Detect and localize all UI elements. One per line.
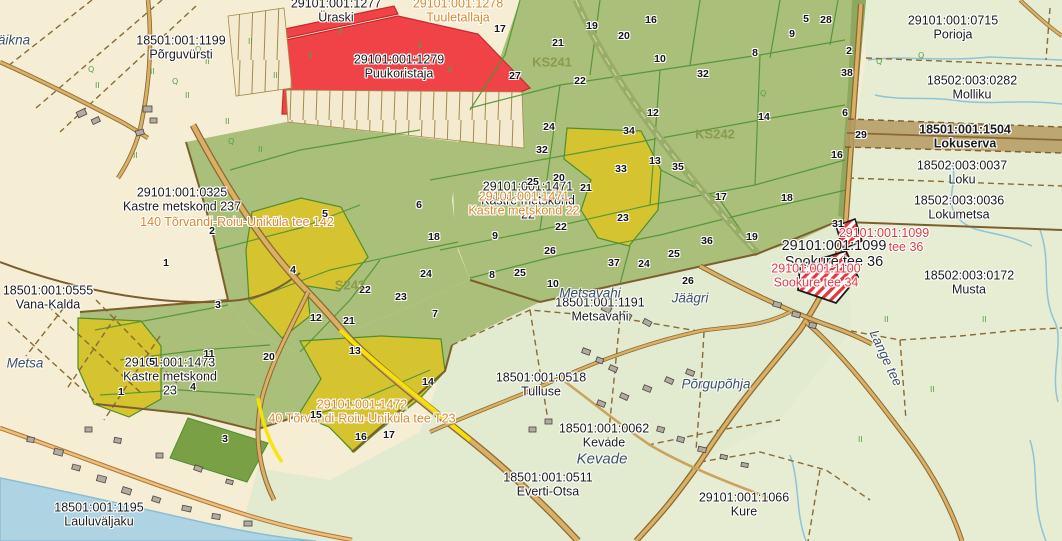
svg-text:II: II bbox=[248, 37, 253, 46]
cadastral-map[interactable]: IIIIII IIIIII IIIIII IIIIII IIIIII IIIIQ… bbox=[0, 0, 1062, 541]
svg-text:Q: Q bbox=[88, 65, 94, 74]
svg-text:II: II bbox=[418, 41, 423, 50]
svg-text:Q: Q bbox=[172, 77, 178, 86]
svg-text:Q: Q bbox=[228, 137, 234, 146]
map-canvas: IIIIII IIIIII IIIIII IIIIII IIIIII IIIIQ… bbox=[0, 0, 1062, 541]
svg-text:II: II bbox=[225, 117, 230, 126]
svg-text:II: II bbox=[95, 81, 100, 90]
svg-text:II: II bbox=[258, 145, 263, 154]
svg-text:II: II bbox=[858, 435, 863, 444]
svg-text:II: II bbox=[185, 91, 190, 100]
svg-text:II: II bbox=[205, 57, 210, 66]
svg-text:II: II bbox=[930, 385, 935, 394]
svg-text:II: II bbox=[150, 67, 155, 76]
svg-text:II: II bbox=[273, 71, 278, 80]
svg-text:II: II bbox=[448, 65, 453, 74]
svg-text:II: II bbox=[308, 51, 313, 60]
svg-text:II: II bbox=[884, 315, 889, 324]
svg-text:II: II bbox=[338, 27, 343, 36]
svg-text:Q: Q bbox=[195, 45, 201, 54]
svg-text:Q: Q bbox=[876, 57, 882, 66]
svg-text:II: II bbox=[982, 315, 987, 324]
svg-text:Q: Q bbox=[918, 51, 924, 60]
svg-text:II: II bbox=[133, 151, 138, 160]
svg-text:Q: Q bbox=[760, 89, 766, 98]
